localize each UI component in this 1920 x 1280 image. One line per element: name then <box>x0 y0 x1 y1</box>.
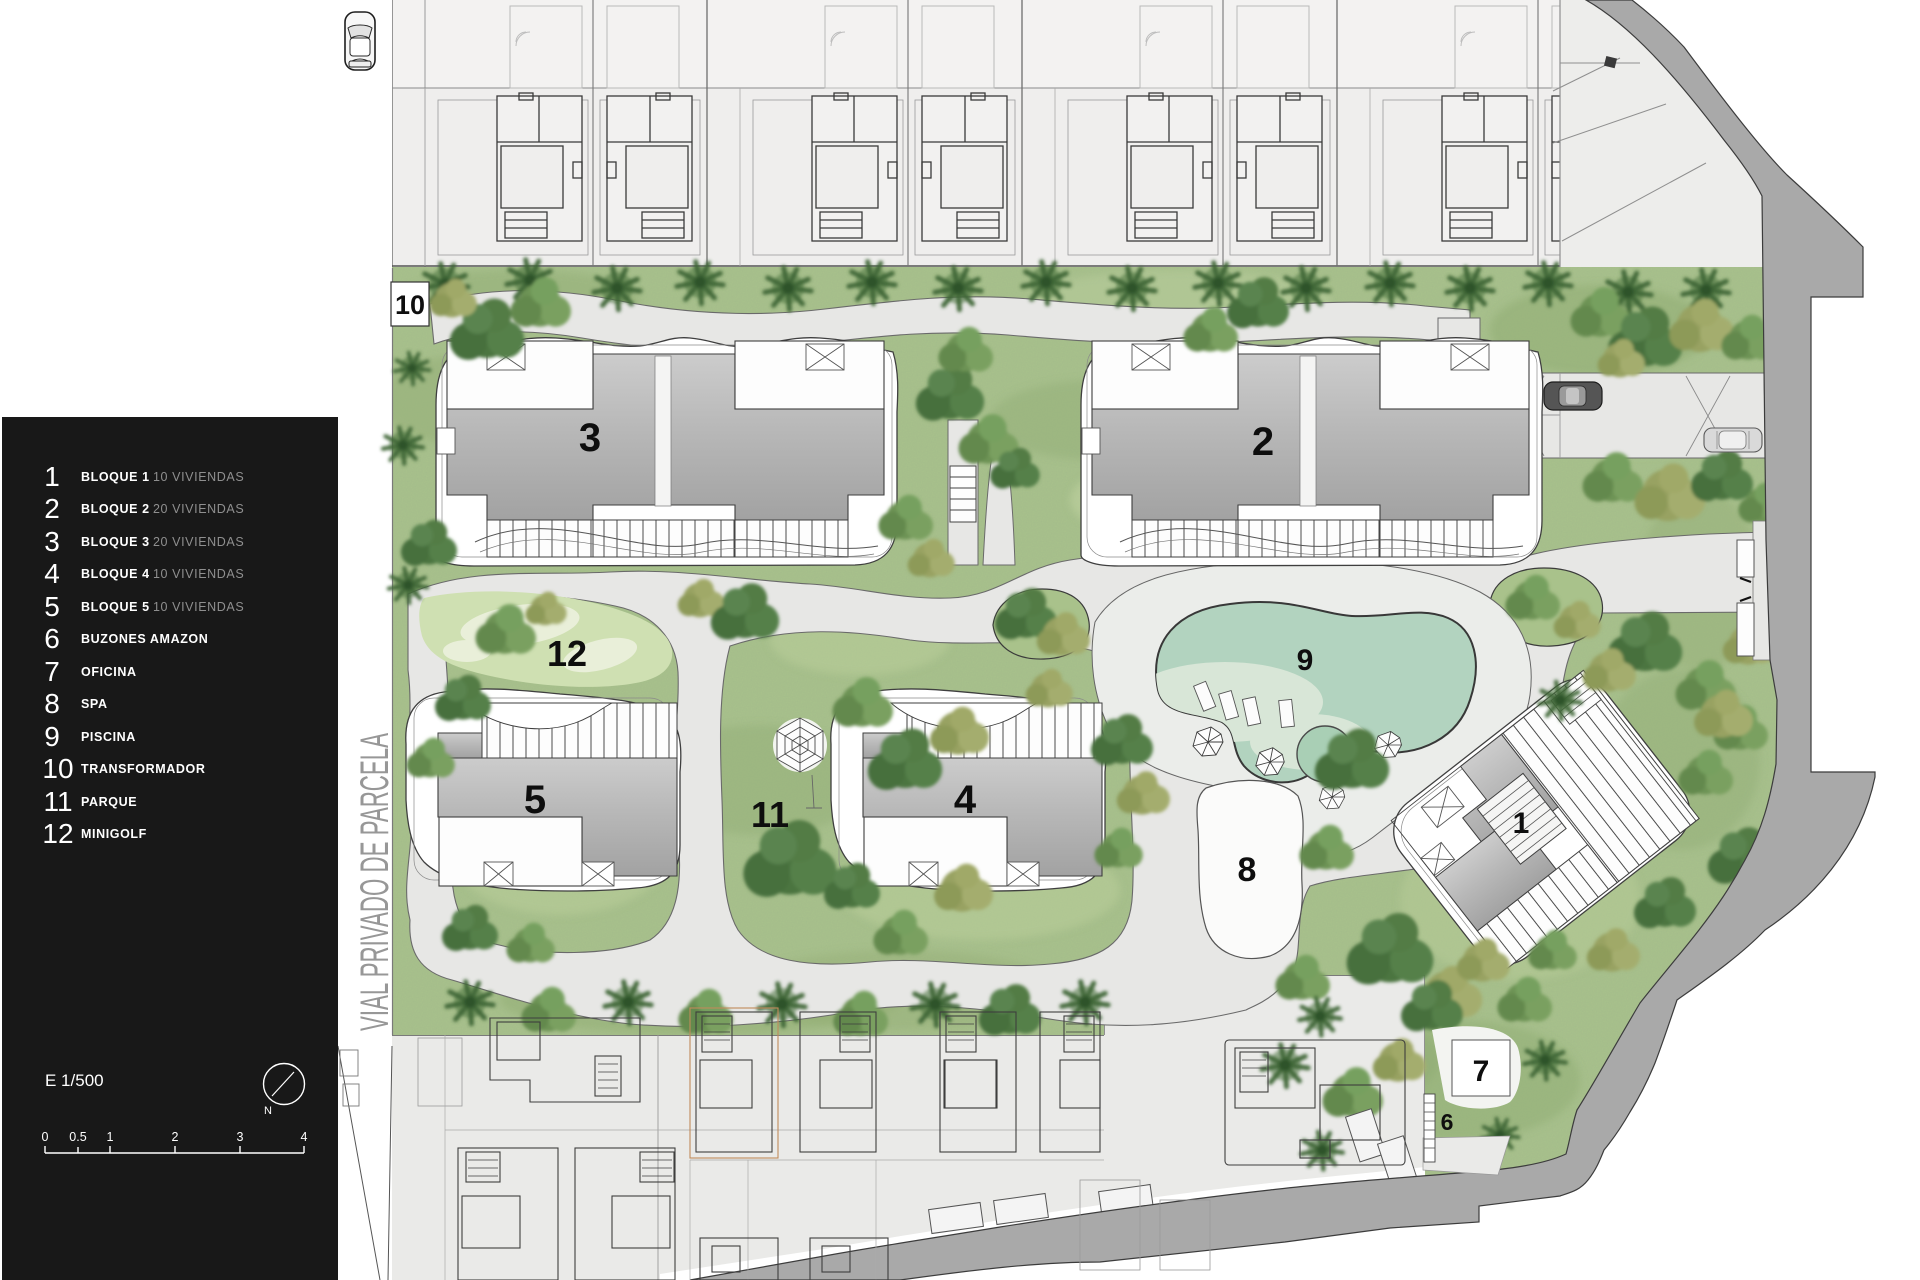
svg-text:4: 4 <box>44 558 60 589</box>
svg-text:MINIGOLF: MINIGOLF <box>81 827 147 841</box>
svg-text:3: 3 <box>237 1130 244 1144</box>
svg-text:PARQUE: PARQUE <box>81 795 137 809</box>
svg-text:0.5: 0.5 <box>69 1130 86 1144</box>
svg-text:10 VIVIENDAS: 10 VIVIENDAS <box>153 567 244 581</box>
svg-text:6: 6 <box>1441 1109 1454 1135</box>
svg-text:5: 5 <box>524 778 546 822</box>
svg-text:11: 11 <box>751 794 789 835</box>
svg-text:BLOQUE 2: BLOQUE 2 <box>81 502 150 516</box>
svg-text:6: 6 <box>44 623 60 654</box>
svg-text:BLOQUE 3: BLOQUE 3 <box>81 535 150 549</box>
svg-text:2: 2 <box>44 493 60 524</box>
svg-text:4: 4 <box>954 778 977 822</box>
svg-text:8: 8 <box>44 688 60 719</box>
svg-text:20 VIVIENDAS: 20 VIVIENDAS <box>153 502 244 516</box>
svg-text:SPA: SPA <box>81 697 108 711</box>
svg-text:BUZONES AMAZON: BUZONES AMAZON <box>81 632 208 646</box>
svg-text:7: 7 <box>1473 1055 1490 1088</box>
svg-text:10: 10 <box>42 753 73 784</box>
svg-text:2: 2 <box>1252 420 1274 464</box>
svg-text:1: 1 <box>44 461 60 492</box>
svg-text:0: 0 <box>42 1130 49 1144</box>
svg-text:9: 9 <box>44 721 60 752</box>
svg-text:VIAL PRIVADO DE PARCELA: VIAL PRIVADO DE PARCELA <box>353 733 397 1031</box>
svg-text:1: 1 <box>107 1130 114 1144</box>
svg-text:10: 10 <box>395 290 425 320</box>
svg-text:1: 1 <box>1513 807 1530 840</box>
svg-text:7: 7 <box>44 656 60 687</box>
svg-text:N: N <box>264 1105 272 1117</box>
svg-text:10 VIVIENDAS: 10 VIVIENDAS <box>153 600 244 614</box>
svg-text:BLOQUE 1: BLOQUE 1 <box>81 470 150 484</box>
svg-text:BLOQUE 5: BLOQUE 5 <box>81 600 150 614</box>
svg-text:4: 4 <box>301 1130 308 1144</box>
svg-text:8: 8 <box>1238 851 1257 889</box>
svg-text:12: 12 <box>42 818 73 849</box>
svg-text:2: 2 <box>172 1130 179 1144</box>
svg-text:PISCINA: PISCINA <box>81 730 136 744</box>
svg-text:5: 5 <box>44 591 60 622</box>
svg-text:3: 3 <box>44 526 60 557</box>
svg-text:10 VIVIENDAS: 10 VIVIENDAS <box>153 470 244 484</box>
svg-text:11: 11 <box>43 786 72 817</box>
svg-text:3: 3 <box>579 416 601 460</box>
svg-text:TRANSFORMADOR: TRANSFORMADOR <box>81 762 205 776</box>
svg-text:BLOQUE 4: BLOQUE 4 <box>81 567 150 581</box>
svg-text:9: 9 <box>1297 644 1314 677</box>
svg-text:OFICINA: OFICINA <box>81 665 137 679</box>
svg-text:20 VIVIENDAS: 20 VIVIENDAS <box>153 535 244 549</box>
svg-text:12: 12 <box>547 633 587 674</box>
svg-text:E 1/500: E 1/500 <box>45 1071 104 1090</box>
